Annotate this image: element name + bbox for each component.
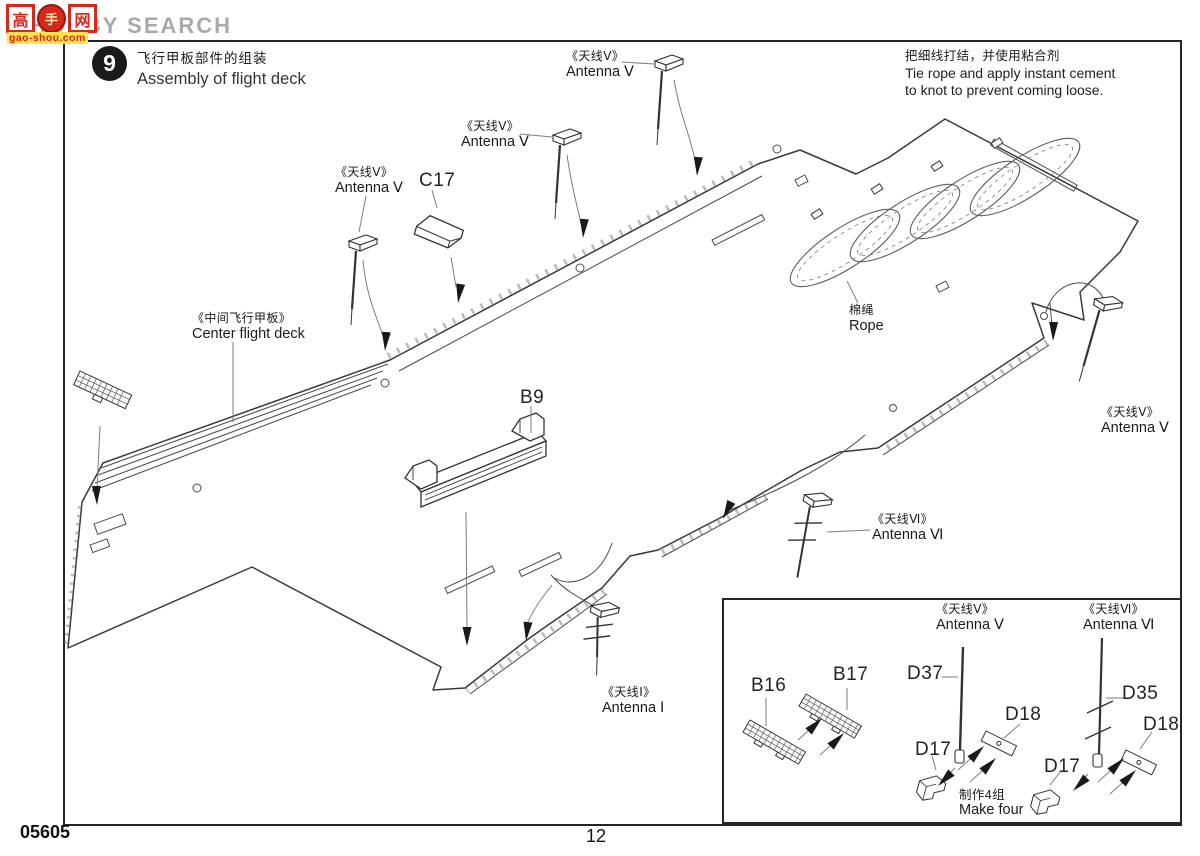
center-flight-deck-label-en: Center flight deck (192, 326, 305, 343)
logo-char-box-icon: 高 (6, 4, 35, 33)
antenna-v-part-right (1077, 293, 1123, 387)
gaoshou-logo: 高 手 网 (6, 4, 97, 33)
antenna-i-part (579, 600, 620, 678)
center-flight-deck-label-zh: 《中间飞行甲板》 (192, 312, 305, 326)
antenna-v-label: 《天线Ⅴ》 Antenna Ⅴ (1101, 406, 1169, 436)
part-d18-mid-shape (981, 731, 1016, 756)
antenna-v-label-zh: 《天线Ⅴ》 (461, 120, 529, 134)
antenna-vi-label-zh: 《天线Ⅵ》 (1083, 603, 1154, 617)
antenna-i-label-en: Antenna Ⅰ (602, 700, 664, 717)
part-label-b9: B9 (520, 387, 544, 409)
antenna-i-label: 《天线Ⅰ》 Antenna Ⅰ (602, 686, 664, 716)
step-title-zh: 飞行甲板部件的组装 (137, 47, 306, 67)
part-d17-right-shape (1029, 786, 1061, 819)
logo-domain-text: gao-shou.com (7, 32, 88, 44)
antenna-vi-label: 《天线Ⅵ》 Antenna Ⅵ (872, 513, 943, 543)
note-en-line2: to knot to prevent coming loose. (905, 82, 1115, 99)
note-zh: 把细线打结，并使用粘合剂 (905, 48, 1115, 65)
part-label-d17: D17 (1044, 756, 1080, 778)
page-number: 12 (586, 826, 606, 847)
part-label-d37: D37 (907, 663, 943, 685)
antenna-v-label-en: Antenna Ⅴ (936, 617, 1004, 634)
part-label-c17: C17 (419, 170, 455, 192)
step-number-badge: 9 (92, 46, 127, 81)
inset-antenna-vi-label: 《天线Ⅵ》 Antenna Ⅵ (1083, 603, 1154, 633)
antenna-i-label-zh: 《天线Ⅰ》 (602, 686, 664, 700)
make-four-en: Make four (959, 802, 1023, 819)
instruction-page: { "watermark": { "brand_text": "HOBBY SE… (0, 0, 1200, 856)
antenna-v-label-zh: 《天线Ⅴ》 (1101, 406, 1169, 420)
rope-label-zh: 棉绳 (849, 304, 884, 318)
logo-char-box-icon: 网 (68, 4, 97, 33)
antenna-v-label-zh: 《天线Ⅴ》 (936, 603, 1004, 617)
antenna-vi-label-en: Antenna Ⅵ (1083, 617, 1154, 634)
note-en-line1: Tie rope and apply instant cement (905, 65, 1115, 82)
part-label-d35: D35 (1122, 683, 1158, 705)
antenna-v-part-top (655, 55, 683, 145)
part-b16-shape (741, 720, 805, 768)
antenna-v-label-en: Antenna Ⅴ (461, 134, 529, 151)
antenna-vi-label-zh: 《天线Ⅵ》 (872, 513, 943, 527)
antenna-v-label: 《天线Ⅴ》 Antenna Ⅴ (461, 120, 529, 150)
part-d17-mid-shape (915, 772, 947, 805)
antenna-v-label-en: Antenna Ⅴ (1101, 420, 1169, 437)
step-title-en: Assembly of flight deck (137, 70, 306, 89)
antenna-v-part-left (349, 235, 377, 325)
part-label-d18: D18 (1005, 704, 1041, 726)
kit-number: 05605 (20, 822, 70, 843)
antenna-vi-label-en: Antenna Ⅵ (872, 527, 943, 544)
part-c17-shape (413, 213, 464, 251)
antenna-v-label: 《天线Ⅴ》 Antenna Ⅴ (335, 166, 403, 196)
antenna-v-label-en: Antenna Ⅴ (335, 180, 403, 197)
instruction-note: 把细线打结，并使用粘合剂 Tie rope and apply instant … (905, 48, 1115, 99)
step-title: 飞行甲板部件的组装 Assembly of flight deck (137, 47, 306, 89)
antenna-v-label-zh: 《天线Ⅴ》 (335, 166, 403, 180)
make-four-note: 制作4组 Make four (959, 788, 1023, 819)
part-d18-right-shape (1121, 750, 1156, 775)
antenna-vi-part (780, 488, 833, 581)
part-label-b16: B16 (751, 675, 786, 697)
logo-emblem-icon: 手 (37, 4, 66, 33)
part-d37-shape (955, 647, 964, 763)
part-b17-shape (797, 694, 861, 742)
rope-label-en: Rope (849, 318, 884, 335)
antenna-v-label-zh: 《天线Ⅴ》 (566, 50, 634, 64)
part-d35-shape (1085, 638, 1113, 767)
antenna-v-label-en: Antenna Ⅴ (566, 64, 634, 81)
walkway-part (72, 371, 132, 413)
part-label-b17: B17 (833, 664, 868, 686)
part-label-d18: D18 (1143, 714, 1179, 736)
make-four-zh: 制作4组 (959, 788, 1023, 802)
part-label-d17: D17 (915, 739, 951, 761)
center-flight-deck-label: 《中间飞行甲板》 Center flight deck (192, 312, 305, 342)
inset-antenna-v-label: 《天线Ⅴ》 Antenna Ⅴ (936, 603, 1004, 633)
exploded-view-diagram (0, 0, 1200, 856)
rope-label: 棉绳 Rope (849, 304, 884, 334)
antenna-v-label: 《天线Ⅴ》 Antenna Ⅴ (566, 50, 634, 80)
